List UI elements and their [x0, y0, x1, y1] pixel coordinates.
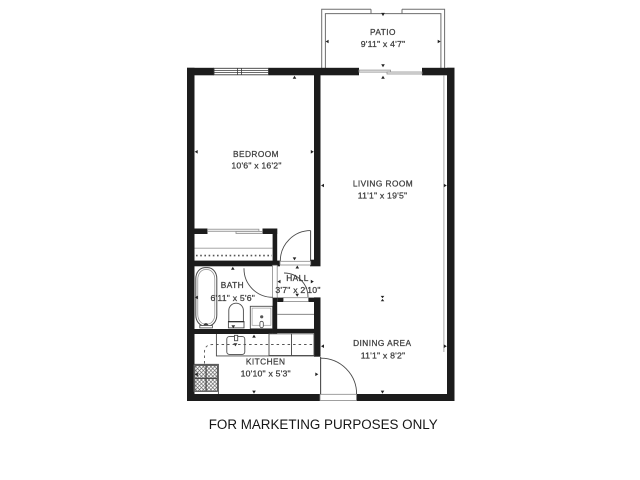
svg-text:FOR MARKETING PURPOSES ONLY: FOR MARKETING PURPOSES ONLY	[209, 417, 438, 432]
svg-text:PATIO: PATIO	[370, 27, 396, 37]
svg-text:10'6" x 16'2": 10'6" x 16'2"	[231, 160, 281, 170]
svg-text:11'1" x 8'2": 11'1" x 8'2"	[361, 351, 406, 361]
svg-text:DINING AREA: DINING AREA	[353, 338, 411, 348]
svg-text:BEDROOM: BEDROOM	[233, 149, 279, 159]
svg-text:9'11" x 4'7": 9'11" x 4'7"	[361, 39, 406, 49]
svg-text:LIVING ROOM: LIVING ROOM	[353, 179, 413, 189]
svg-text:KITCHEN: KITCHEN	[246, 357, 286, 367]
svg-text:HALL: HALL	[286, 273, 309, 283]
svg-text:3'7" x 2'10": 3'7" x 2'10"	[275, 285, 320, 295]
svg-text:11'1" x 19'5": 11'1" x 19'5"	[358, 191, 408, 201]
svg-text:6'11" x 5'6": 6'11" x 5'6"	[211, 293, 256, 303]
svg-text:BATH: BATH	[221, 280, 244, 290]
svg-text:10'10" x 5'3": 10'10" x 5'3"	[241, 368, 291, 378]
